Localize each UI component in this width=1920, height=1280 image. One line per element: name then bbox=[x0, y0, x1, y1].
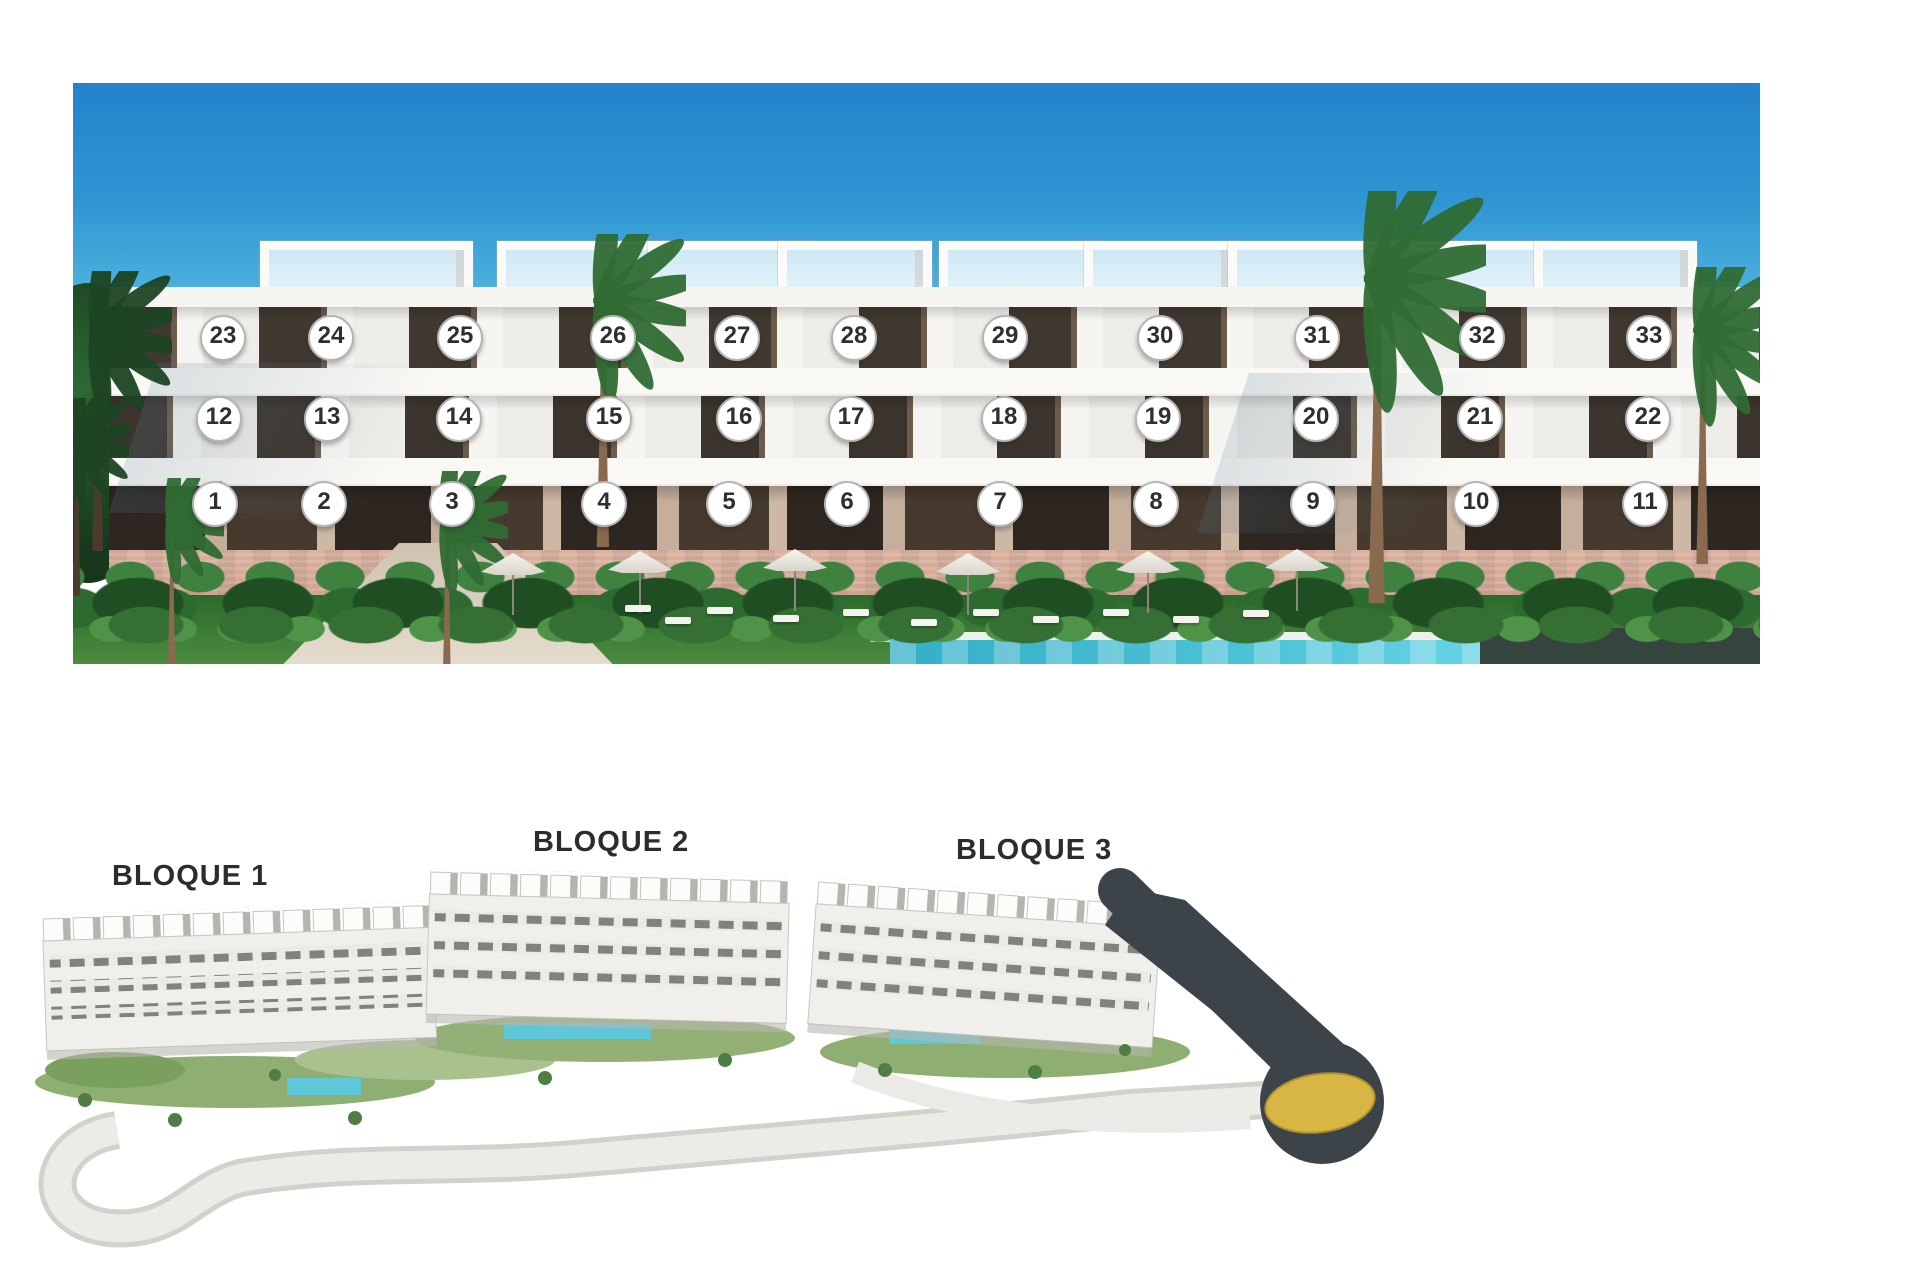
unit-marker-18[interactable]: 18 bbox=[981, 396, 1027, 442]
unit-marker-17[interactable]: 17 bbox=[828, 396, 874, 442]
unit-marker-32[interactable]: 32 bbox=[1459, 315, 1505, 361]
block-1-building bbox=[42, 901, 437, 1060]
unit-marker-3[interactable]: 3 bbox=[429, 481, 475, 527]
unit-marker-1[interactable]: 1 bbox=[192, 481, 238, 527]
unit-marker-24[interactable]: 24 bbox=[308, 315, 354, 361]
unit-marker-12[interactable]: 12 bbox=[196, 396, 242, 442]
unit-marker-23[interactable]: 23 bbox=[200, 315, 246, 361]
unit-marker-15[interactable]: 15 bbox=[586, 396, 632, 442]
unit-marker-31[interactable]: 31 bbox=[1294, 315, 1340, 361]
unit-marker-30[interactable]: 30 bbox=[1137, 315, 1183, 361]
block-label-bloque-1: BLOQUE 1 bbox=[112, 860, 268, 893]
unit-marker-2[interactable]: 2 bbox=[301, 481, 347, 527]
block-label-bloque-2: BLOQUE 2 bbox=[533, 826, 689, 859]
unit-marker-28[interactable]: 28 bbox=[831, 315, 877, 361]
page: 2324252627282930313233121314151617181920… bbox=[0, 0, 1920, 1280]
unit-marker-29[interactable]: 29 bbox=[982, 315, 1028, 361]
unit-marker-20[interactable]: 20 bbox=[1293, 396, 1339, 442]
unit-marker-9[interactable]: 9 bbox=[1290, 481, 1336, 527]
site-plan-render: BLOQUE 1 BLOQUE 2 BLOQUE 3 bbox=[25, 820, 1435, 1260]
unit-marker-33[interactable]: 33 bbox=[1626, 315, 1672, 361]
unit-marker-25[interactable]: 25 bbox=[437, 315, 483, 361]
unit-marker-10[interactable]: 10 bbox=[1453, 481, 1499, 527]
building-elevation-render: 2324252627282930313233121314151617181920… bbox=[73, 83, 1760, 664]
block-2-building bbox=[426, 868, 790, 1032]
unit-marker-14[interactable]: 14 bbox=[436, 396, 482, 442]
unit-marker-6[interactable]: 6 bbox=[824, 481, 870, 527]
unit-marker-26[interactable]: 26 bbox=[590, 315, 636, 361]
block-label-bloque-3: BLOQUE 3 bbox=[956, 834, 1112, 867]
unit-marker-16[interactable]: 16 bbox=[716, 396, 762, 442]
unit-marker-7[interactable]: 7 bbox=[977, 481, 1023, 527]
unit-marker-8[interactable]: 8 bbox=[1133, 481, 1179, 527]
unit-markers: 2324252627282930313233121314151617181920… bbox=[73, 83, 1760, 664]
unit-marker-5[interactable]: 5 bbox=[706, 481, 752, 527]
unit-marker-19[interactable]: 19 bbox=[1135, 396, 1181, 442]
unit-marker-27[interactable]: 27 bbox=[714, 315, 760, 361]
unit-marker-4[interactable]: 4 bbox=[581, 481, 627, 527]
unit-marker-11[interactable]: 11 bbox=[1622, 481, 1668, 527]
unit-marker-13[interactable]: 13 bbox=[304, 396, 350, 442]
unit-marker-22[interactable]: 22 bbox=[1625, 396, 1671, 442]
unit-marker-21[interactable]: 21 bbox=[1457, 396, 1503, 442]
